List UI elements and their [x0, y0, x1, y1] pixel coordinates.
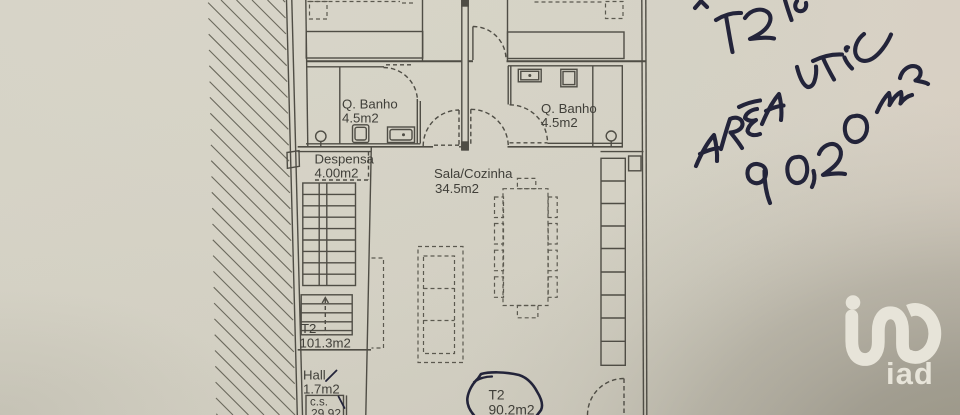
svg-text:101.3m2: 101.3m2	[300, 336, 351, 351]
svg-text:iad: iad	[886, 356, 934, 391]
svg-text:Sala/Cozinha: Sala/Cozinha	[434, 166, 513, 181]
svg-text:4.5m2: 4.5m2	[541, 115, 578, 130]
svg-text:Hall: Hall	[303, 368, 326, 383]
svg-text:Q. Banho: Q. Banho	[342, 97, 398, 112]
svg-text:4.5m2: 4.5m2	[342, 111, 379, 126]
svg-text:T2: T2	[489, 388, 505, 403]
svg-text:T2: T2	[301, 321, 316, 336]
svg-text:90.2m2: 90.2m2	[489, 403, 535, 415]
svg-text:34.5m2: 34.5m2	[435, 181, 479, 196]
svg-text:1.7m2: 1.7m2	[303, 382, 340, 397]
svg-text:4.00m2: 4.00m2	[315, 166, 359, 181]
svg-text:Despensa: Despensa	[315, 152, 375, 167]
svg-text:29.92: 29.92	[311, 407, 341, 415]
svg-text:Q. Banho: Q. Banho	[541, 101, 597, 116]
